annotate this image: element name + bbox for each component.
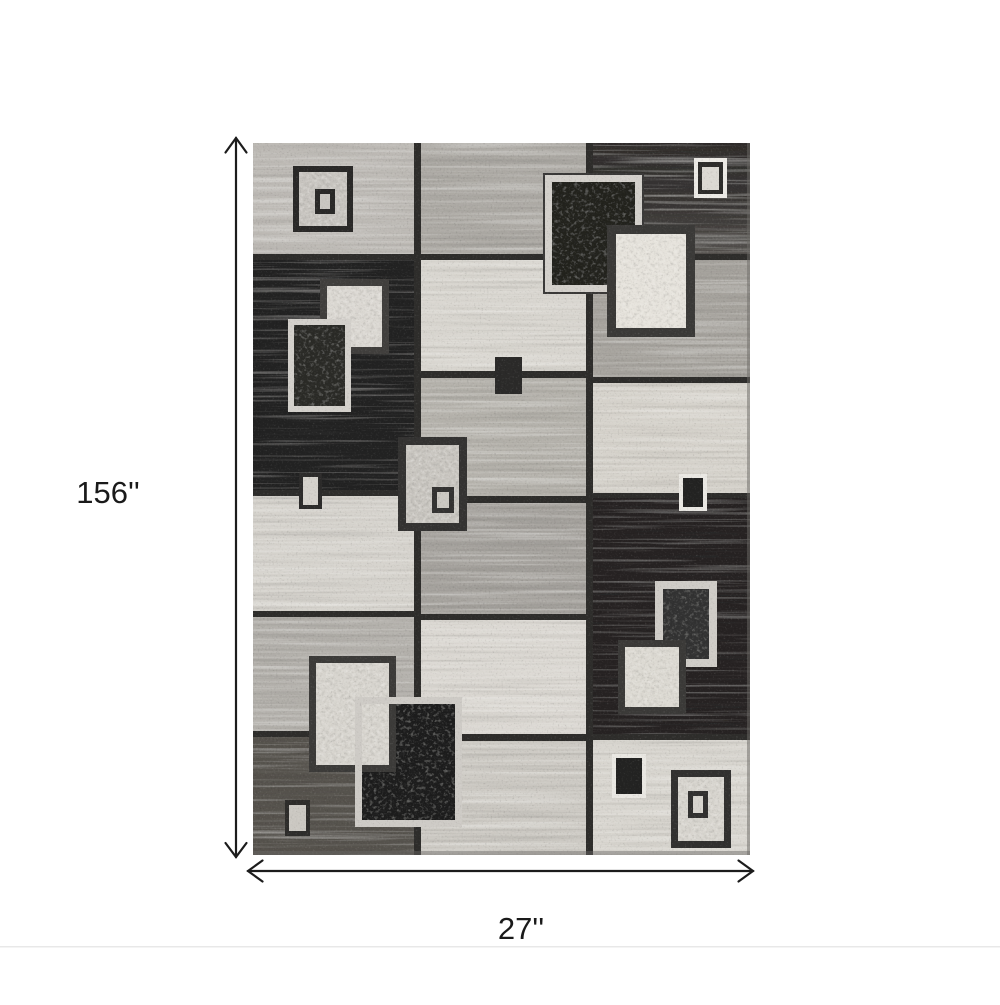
svg-text:27'': 27'' (498, 911, 544, 946)
svg-text:156'': 156'' (76, 475, 140, 510)
